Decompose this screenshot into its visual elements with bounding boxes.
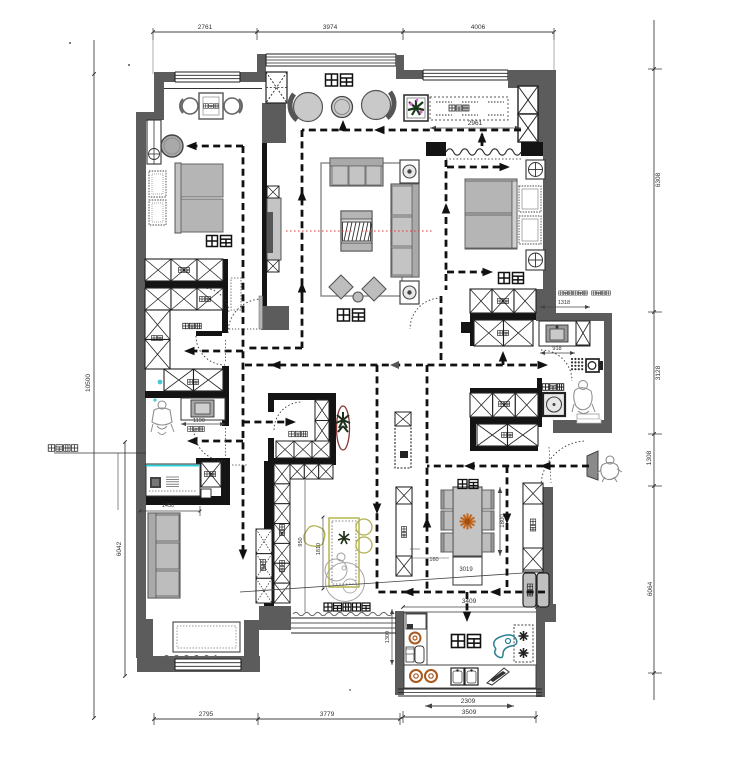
svg-text:4006: 4006 <box>471 24 486 31</box>
svg-text:1450: 1450 <box>162 503 174 509</box>
svg-text:10500: 10500 <box>85 374 92 392</box>
svg-text:2961: 2961 <box>468 120 483 127</box>
svg-text:6042: 6042 <box>116 541 123 556</box>
svg-text:2761: 2761 <box>198 24 213 31</box>
svg-text:1300: 1300 <box>385 631 391 643</box>
svg-text:1308: 1308 <box>646 450 653 465</box>
svg-text:3128: 3128 <box>655 365 662 380</box>
svg-text:2309: 2309 <box>461 698 476 705</box>
svg-text:2795: 2795 <box>199 711 214 718</box>
svg-text:6064: 6064 <box>647 581 654 596</box>
svg-text:3509: 3509 <box>462 709 477 716</box>
svg-text:3019: 3019 <box>459 567 473 573</box>
svg-text:3974: 3974 <box>323 24 338 31</box>
svg-text:1318: 1318 <box>558 300 570 306</box>
svg-text:1190: 1190 <box>193 418 205 424</box>
svg-text:950: 950 <box>298 537 304 546</box>
svg-text:3409: 3409 <box>462 598 477 605</box>
svg-text:1810: 1810 <box>316 543 322 555</box>
svg-text:6308: 6308 <box>655 172 662 187</box>
svg-text:3779: 3779 <box>320 711 335 718</box>
svg-text:918: 918 <box>552 346 561 352</box>
